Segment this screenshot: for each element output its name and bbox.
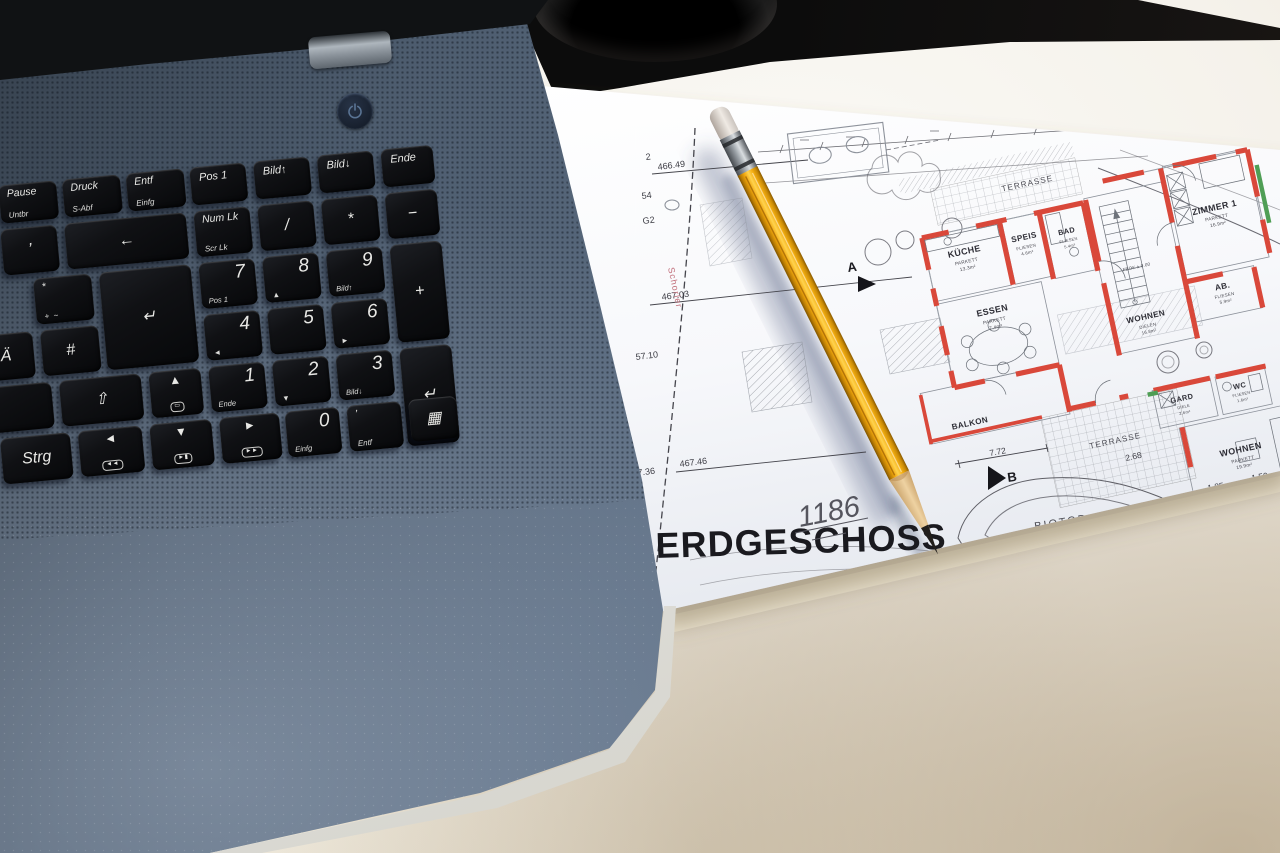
key-label: 6 xyxy=(366,301,379,323)
key-label: Bild↑ xyxy=(262,164,287,179)
key-page-down[interactable]: Bild↓ xyxy=(317,150,376,193)
key-sublabel: ▲ xyxy=(272,290,280,300)
key-umlaut-a[interactable]: Ä xyxy=(0,331,36,382)
key-label: ▼ xyxy=(150,423,213,442)
key-num-lock[interactable]: Num LkScr Lk xyxy=(193,206,253,257)
keyboard: PauseUntbrDruckS-AbfEntfEinfgPos 1Bild↑B… xyxy=(0,143,485,497)
key-numpad-minus[interactable]: − xyxy=(384,189,440,240)
key-numpad-divide[interactable]: / xyxy=(257,200,317,251)
key-label: 2 xyxy=(307,358,320,380)
key-label: 3 xyxy=(371,352,384,374)
key-sublabel: Einfg xyxy=(295,443,313,454)
key-label: ▲ xyxy=(149,372,202,390)
key-label: * xyxy=(321,194,381,245)
key-label: 1 xyxy=(243,365,256,387)
key-label: ◄ xyxy=(78,429,143,448)
display-toggle-icon: ▭ xyxy=(170,401,185,412)
key-label: ⇧ xyxy=(59,373,145,427)
key-label: Ä xyxy=(0,331,36,382)
key-blank[interactable] xyxy=(0,382,55,437)
media-play-pause-icon: ►▮ xyxy=(174,453,193,464)
key-label: Num Lk xyxy=(202,211,239,226)
key-numpad-multiply[interactable]: * xyxy=(321,194,381,245)
key-label: / xyxy=(257,200,317,251)
key-enter[interactable]: ↵ xyxy=(99,264,200,370)
media-next-icon: ►► xyxy=(241,446,263,458)
key-label: Ende xyxy=(390,151,417,166)
key-sublabel: Entf xyxy=(357,438,372,448)
key-label: Druck xyxy=(70,180,98,194)
key-numpad-7[interactable]: 7Pos 1 xyxy=(198,258,258,309)
key-media-next[interactable]: ►►► xyxy=(219,412,283,463)
key-media-previous[interactable]: ◄◄◄ xyxy=(77,425,145,477)
power-button[interactable] xyxy=(337,93,373,129)
key-sublabel: ◄ xyxy=(213,348,221,358)
key-label: 4 xyxy=(239,313,252,335)
key-label: ↵ xyxy=(99,264,200,370)
key-hash[interactable]: # xyxy=(40,325,102,376)
key-pause[interactable]: PauseUntbr xyxy=(0,180,59,223)
key-sublabel: Pos 1 xyxy=(208,295,228,306)
key-label: + xyxy=(389,240,450,342)
elevation-label: 54 xyxy=(641,190,652,201)
key-delete-insert[interactable]: EntfEinfg xyxy=(125,168,186,211)
dimension-label: 5.20 xyxy=(1253,529,1271,542)
key-ctrl[interactable]: Strg xyxy=(0,432,74,484)
photo-scene: 2 466.49 54 G2 467.03 57.10 467.36 467.4… xyxy=(0,0,1280,853)
key-label: * xyxy=(41,282,46,294)
key-label: Entf xyxy=(134,175,154,188)
key-label: ’ xyxy=(355,409,358,421)
key-numpad-3[interactable]: 3Bild↓ xyxy=(335,350,395,401)
key-asterisk-plus[interactable]: *+ ~ xyxy=(33,273,95,324)
key-sublabel: Bild↓ xyxy=(346,386,363,396)
key-shift[interactable]: ⇧ xyxy=(59,373,145,427)
key-label: 9 xyxy=(361,249,374,271)
key-backspace[interactable]: ← xyxy=(64,212,190,269)
key-numpad-delete[interactable]: ’Entf xyxy=(346,401,404,452)
key-label: ► xyxy=(219,416,280,435)
key-sublabel: ► xyxy=(341,336,349,346)
key-sublabel: S-Abf xyxy=(72,203,93,214)
key-label: # xyxy=(40,325,102,376)
elevation-label: G2 xyxy=(642,215,655,226)
key-numpad-4[interactable]: 4◄ xyxy=(203,310,263,361)
key-numpad-2[interactable]: 2▼ xyxy=(272,356,332,407)
key-numpad-8[interactable]: 8▲ xyxy=(262,252,322,303)
key-label: 7 xyxy=(234,261,247,283)
key-label: 8 xyxy=(297,255,310,277)
key-label: Pos 1 xyxy=(199,169,228,184)
key-calculator[interactable]: ▦ xyxy=(408,396,460,442)
power-icon xyxy=(347,103,363,119)
key-label: ← xyxy=(64,212,190,269)
key-numpad-0[interactable]: 0Einfg xyxy=(285,407,343,458)
key-label: − xyxy=(384,189,440,240)
key-sublabel: ▼ xyxy=(282,393,290,403)
key-print[interactable]: DruckS-Abf xyxy=(62,174,123,217)
key-numpad-1[interactable]: 1Ende xyxy=(208,362,268,413)
key-label: ’ xyxy=(0,225,60,276)
key-numpad-plus[interactable]: + xyxy=(389,240,450,342)
media-previous-icon: ◄◄ xyxy=(102,459,124,471)
key-sublabel: Ende xyxy=(218,398,236,409)
key-label: Strg xyxy=(0,432,74,484)
key-sublabel: Einfg xyxy=(136,197,155,208)
key-numpad-6[interactable]: 6► xyxy=(330,298,390,349)
key-label: 5 xyxy=(302,307,315,329)
key-label: Pause xyxy=(6,186,37,201)
key-sublabel: Scr Lk xyxy=(204,243,227,254)
dimension-label: 4.44 xyxy=(1243,505,1261,518)
key-label: 0 xyxy=(318,410,331,432)
key-media-play-pause[interactable]: ▼►▮ xyxy=(149,419,215,471)
key-page-up[interactable]: Bild↑ xyxy=(253,156,312,199)
key-apostrophe[interactable]: ’ xyxy=(0,225,60,276)
key-display-toggle[interactable]: ▲▭ xyxy=(148,368,204,419)
key-home[interactable]: Pos 1 xyxy=(189,162,248,205)
key-numpad-9[interactable]: 9Bild↑ xyxy=(326,246,386,297)
key-sublabel: Bild↑ xyxy=(336,283,353,293)
key-sublabel: Untbr xyxy=(8,209,28,220)
key-label: Bild↓ xyxy=(326,158,351,173)
key-numpad-5[interactable]: 5 xyxy=(267,304,327,355)
key-end[interactable]: Ende xyxy=(380,145,435,188)
key-label: ▦ xyxy=(408,396,460,442)
key-sublabel: + ~ xyxy=(44,311,59,321)
